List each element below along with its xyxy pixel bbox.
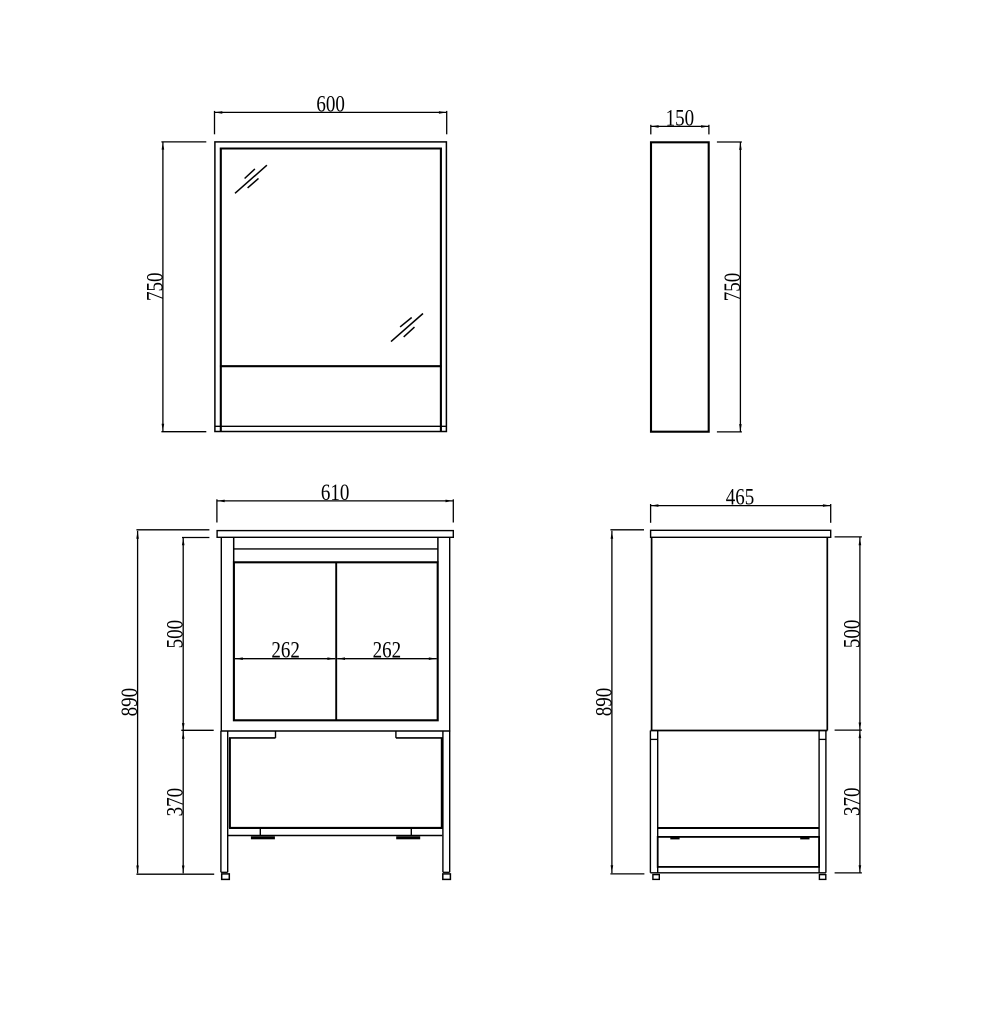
svg-text:610: 610 [321, 480, 350, 506]
svg-text:370: 370 [163, 788, 189, 817]
svg-text:262: 262 [271, 638, 300, 664]
svg-text:890: 890 [117, 688, 143, 717]
svg-text:750: 750 [142, 272, 168, 301]
svg-text:150: 150 [666, 105, 695, 131]
svg-text:465: 465 [726, 485, 755, 511]
svg-text:370: 370 [839, 787, 865, 816]
svg-text:500: 500 [839, 620, 865, 649]
svg-text:600: 600 [316, 91, 345, 117]
svg-text:890: 890 [591, 688, 617, 717]
svg-text:500: 500 [163, 620, 189, 649]
svg-text:262: 262 [373, 638, 402, 664]
svg-text:750: 750 [720, 273, 746, 302]
